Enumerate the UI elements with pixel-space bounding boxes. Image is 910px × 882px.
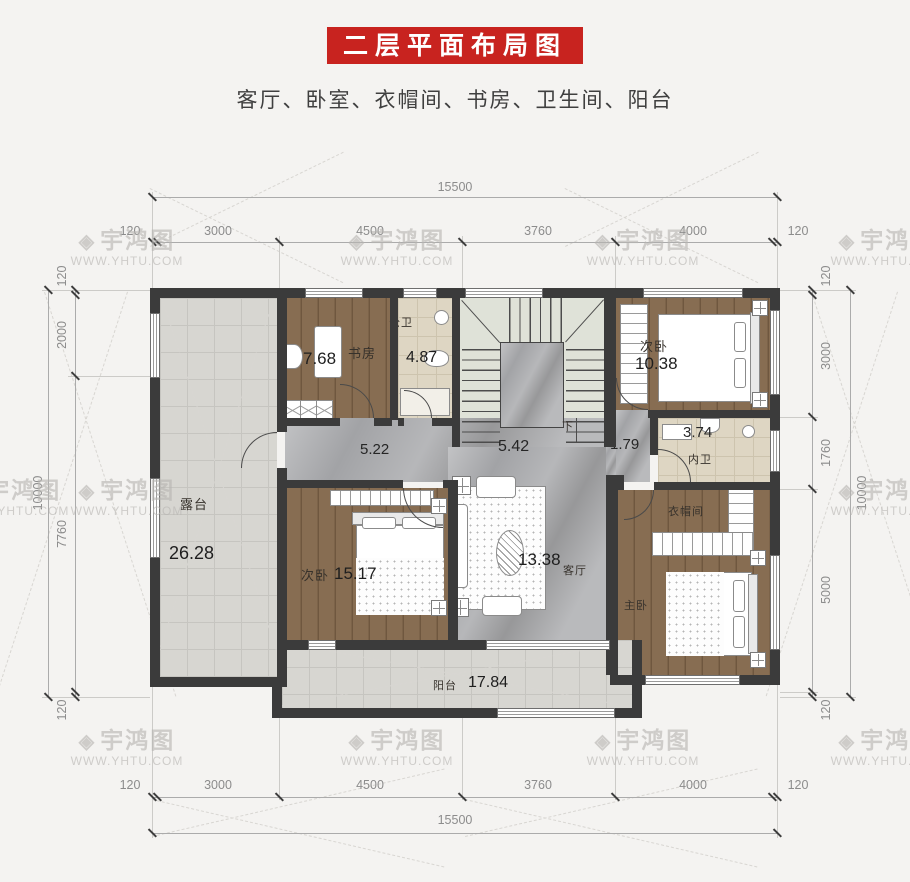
wall — [363, 288, 403, 298]
dim-text: 4000 — [668, 224, 718, 238]
watermark-logo-icon: ◈ — [349, 731, 366, 753]
wall — [398, 418, 404, 426]
nightstand — [750, 652, 766, 668]
wall — [150, 558, 160, 687]
wall — [610, 675, 645, 685]
wall — [150, 378, 160, 478]
watermark-logo-icon: ◈ — [839, 731, 856, 753]
watermark-brand: 宇鸿图 — [860, 727, 910, 753]
wall — [770, 472, 780, 555]
wall — [654, 482, 770, 490]
nightstand — [752, 392, 768, 408]
room-bedroom-bot-area: 15.17 — [334, 564, 377, 584]
watermark-url: WWW.YHTU.COM — [52, 254, 202, 268]
room-study-area: 7.68 — [303, 349, 336, 369]
floor-plan-page: 二层平面布局图 客厅、卧室、衣帽间、书房、卫生间、阳台 — [0, 0, 910, 882]
window — [305, 288, 363, 298]
room-study-label: 书房 — [348, 343, 376, 362]
dim-text: 3760 — [513, 224, 563, 238]
dim-text: 120 — [55, 680, 69, 740]
room-balcony-area: 17.84 — [468, 674, 508, 692]
dim-text: 10000 — [855, 463, 869, 523]
window — [643, 288, 743, 298]
dim-line — [75, 290, 76, 697]
dim-text: 120 — [780, 778, 816, 792]
stair-direction-line — [576, 418, 577, 442]
window — [770, 310, 780, 395]
watermark: ◈宇鸿图WWW.YHTU.COM — [322, 728, 472, 768]
stair-down-label: 下 — [562, 418, 574, 434]
bed-headboard — [750, 312, 760, 404]
wall — [282, 480, 403, 488]
dim-text: 120 — [819, 246, 833, 306]
room-bedroom-top-area: 10.38 — [635, 354, 678, 374]
page-title: 二层平面布局图 — [327, 27, 583, 64]
wardrobe — [728, 488, 754, 534]
bed-headboard — [748, 574, 758, 654]
pillow — [733, 580, 745, 612]
dim-text: 2000 — [55, 305, 69, 365]
cabinet — [300, 400, 317, 420]
dim-text: 120 — [112, 224, 148, 238]
dim-text: 4500 — [345, 778, 395, 792]
wall — [443, 480, 458, 488]
room-bedroom-bot-label: 次卧 — [301, 565, 329, 584]
wall — [374, 418, 392, 426]
wall — [770, 650, 780, 685]
room-ensuite-area: 3.74 — [683, 424, 712, 441]
nightstand — [431, 600, 447, 616]
watermark-logo-icon: ◈ — [839, 481, 856, 503]
wall — [604, 288, 616, 447]
wall — [650, 418, 658, 455]
dim-text: 120 — [55, 246, 69, 306]
watermark-brand: 宇鸿图 — [100, 727, 175, 753]
cabinet — [316, 400, 333, 420]
dashed-guide-line — [150, 188, 344, 283]
dim-text: 3000 — [193, 778, 243, 792]
wall — [432, 418, 452, 426]
wall — [336, 640, 448, 650]
page-subtitle: 客厅、卧室、衣帽间、书房、卫生间、阳台 — [0, 84, 910, 114]
dim-text: 1760 — [819, 423, 833, 483]
window — [465, 288, 543, 298]
wall — [448, 488, 458, 640]
wall — [543, 288, 643, 298]
watermark-brand: 宇鸿图 — [370, 727, 445, 753]
dim-line — [850, 290, 851, 697]
extension-line — [152, 687, 153, 838]
extension-line — [615, 718, 616, 800]
dim-line — [152, 833, 777, 834]
wall — [390, 298, 398, 420]
armchair — [476, 476, 516, 498]
room-bedroom-top-label: 次卧 — [640, 336, 668, 355]
watermark: ◈宇鸿图WWW.YHTU.COM — [52, 728, 202, 768]
room-master-label: 主卧 — [624, 597, 648, 613]
room-cloakroom-label: 衣帽间 — [668, 503, 704, 519]
room-terrace-floor — [160, 298, 277, 677]
room-terrace-area: 26.28 — [169, 543, 214, 564]
dim-line — [812, 290, 813, 697]
wall — [770, 288, 780, 310]
watermark-url: WWW.YHTU.COM — [322, 254, 472, 268]
wall — [277, 468, 287, 687]
room-ensuite-label: 内卫 — [688, 451, 712, 467]
window — [150, 478, 160, 558]
wall — [448, 640, 486, 650]
dashed-guide-line — [150, 152, 344, 247]
dim-text: 4000 — [668, 778, 718, 792]
wall — [452, 298, 460, 447]
room-living-label: 客厅 — [563, 562, 587, 578]
window — [308, 640, 336, 650]
dim-text: 7760 — [55, 504, 69, 564]
dim-text: 10000 — [31, 463, 45, 523]
extension-line — [279, 718, 280, 800]
bench — [482, 596, 522, 616]
window — [403, 288, 437, 298]
dim-line — [152, 197, 777, 198]
wall — [437, 288, 465, 298]
nightstand — [752, 300, 768, 316]
dim-text: 3000 — [819, 326, 833, 386]
dim-text: 120 — [112, 778, 148, 792]
room-balcony-label: 阳台 — [433, 677, 457, 693]
window — [486, 640, 610, 650]
wall — [277, 288, 287, 432]
shower-head — [742, 425, 755, 438]
extension-line — [462, 718, 463, 800]
window — [770, 555, 780, 650]
extension-line — [780, 697, 856, 698]
window — [497, 708, 615, 718]
dim-text: 3000 — [193, 224, 243, 238]
pillow — [733, 616, 745, 648]
extension-line — [780, 290, 856, 291]
hall-left-area: 5.22 — [360, 441, 389, 458]
dim-line — [48, 290, 49, 697]
watermark-url: WWW.YHTU.COM — [52, 754, 202, 768]
nightstand — [750, 550, 766, 566]
dashed-guide-line — [565, 152, 759, 247]
bed-duvet — [666, 572, 724, 656]
room-public-bath-area: 4.87 — [406, 349, 437, 367]
window — [645, 675, 740, 685]
dim-text: 5000 — [819, 560, 833, 620]
stair-treads-top — [500, 298, 564, 342]
dashed-guide-line — [565, 188, 759, 283]
watermark: ◈宇鸿图WWW.YHTU.COM — [568, 728, 718, 768]
window — [770, 430, 780, 472]
room-terrace-label: 露台 — [180, 494, 208, 513]
pillow — [734, 322, 746, 352]
watermark-brand: 宇鸿图 — [616, 727, 691, 753]
room-living-area: 13.38 — [518, 550, 561, 570]
sink — [434, 310, 449, 325]
watermark-url: WWW.YHTU.COM — [322, 754, 472, 768]
watermark-logo-icon: ◈ — [839, 231, 856, 253]
dim-text: 15500 — [425, 180, 485, 194]
wall — [770, 395, 780, 430]
extension-line — [777, 685, 778, 838]
watermark-logo-icon: ◈ — [79, 481, 96, 503]
pillow — [734, 358, 746, 388]
pillow — [362, 517, 396, 529]
dim-text: 15500 — [425, 813, 485, 827]
watermark-logo-icon: ◈ — [79, 231, 96, 253]
dim-text: 4500 — [345, 224, 395, 238]
dim-text: 120 — [819, 680, 833, 740]
extension-line — [68, 376, 150, 377]
dim-text: 120 — [780, 224, 816, 238]
watermark-logo-icon: ◈ — [595, 731, 612, 753]
watermark-brand: 宇鸿图 — [860, 227, 910, 253]
stair-landing — [500, 342, 564, 428]
watermark-url: WWW.YHTU.COM — [568, 254, 718, 268]
dim-text: 3760 — [513, 778, 563, 792]
wall — [272, 708, 497, 718]
wall — [150, 288, 160, 313]
wall — [282, 640, 308, 650]
watermark-url: WWW.YHTU.COM — [812, 754, 910, 768]
hall-mid-area: 5.42 — [498, 438, 529, 456]
window — [150, 313, 160, 378]
watermark-url: WWW.YHTU.COM — [568, 754, 718, 768]
wall — [150, 677, 282, 687]
washbasin — [286, 344, 303, 369]
wall — [282, 418, 340, 426]
wardrobe — [652, 532, 754, 556]
stair-treads-left — [462, 340, 500, 445]
watermark-logo-icon: ◈ — [79, 731, 96, 753]
wall — [648, 410, 770, 418]
